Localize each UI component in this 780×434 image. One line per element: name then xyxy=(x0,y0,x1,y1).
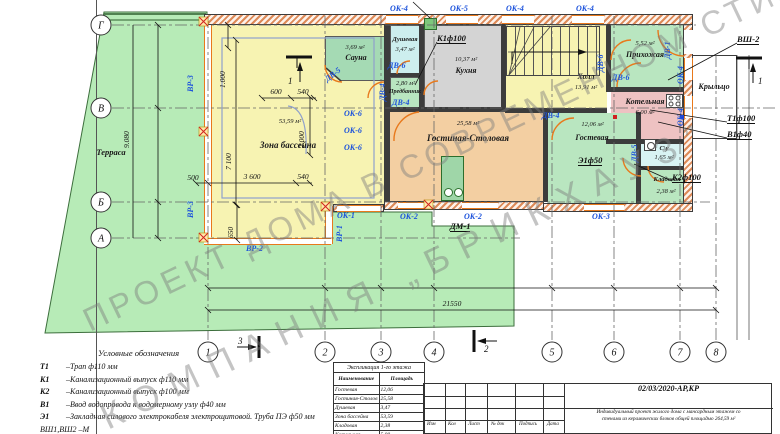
legend-code: Т1 xyxy=(40,361,66,374)
grid-col-label: 7 xyxy=(678,348,684,359)
label-dv4: ДВ-4 xyxy=(378,84,387,101)
name-boiler: Котельная xyxy=(615,97,675,106)
cell-area: 5,00 xyxy=(379,431,425,434)
cell-area: 3,47 xyxy=(379,404,425,413)
grid-row-label: А xyxy=(97,234,105,245)
cell-name: Гостиная-Столов xyxy=(334,395,380,404)
grid-col-label: 6 xyxy=(612,348,617,359)
label-dv1: ДВ-1 xyxy=(663,42,672,59)
label-ok4: ОК-4 xyxy=(576,4,594,13)
stamp-col: № док xyxy=(491,422,504,427)
label-vsh2: ВШ-2 xyxy=(737,34,759,45)
label-v1: В1ф40 xyxy=(727,129,752,140)
area-kitchen: 10,37 м² xyxy=(446,56,486,63)
label-dv4: ДВ-4 xyxy=(392,98,409,107)
grid-col-label: 5 xyxy=(550,348,555,359)
window-ok3 xyxy=(584,204,624,211)
area-anteroom: 2,80 м² xyxy=(391,80,420,87)
label-vr2: ВР-2 xyxy=(246,244,263,253)
table-row: Кладовая2,38 xyxy=(334,422,425,431)
wall xyxy=(384,107,506,112)
legend-text: –Закладная силового электрокабеля электр… xyxy=(66,411,332,424)
section-label: 2 xyxy=(484,344,489,354)
glazing-vr2 xyxy=(204,238,331,245)
legend-text: –Трап ф110 мм xyxy=(66,361,332,374)
wall xyxy=(606,24,611,92)
stamp-col: Подпись xyxy=(519,422,537,427)
project-description: Индивидуальный проект жилого дома с манс… xyxy=(564,409,773,422)
cell-name: Душевая xyxy=(334,404,380,413)
col-area: Площадь xyxy=(379,373,425,386)
grid-col-label: 4 xyxy=(432,348,437,359)
name-hall: Холл xyxy=(566,72,606,81)
label-e1: Э1ф50 xyxy=(578,155,602,166)
grid-row-label: Г xyxy=(97,21,104,32)
grid-row-label: В xyxy=(98,104,104,115)
name-porch: Крыльцо xyxy=(694,82,734,91)
cell-name: Гостевая xyxy=(334,386,380,395)
legend-text: –Канализационный выпуск ф110 мм xyxy=(66,374,332,387)
legend: Условные обозначения Т1–Трап ф110 мм К1–… xyxy=(40,348,332,434)
name-terrace: Терраса xyxy=(86,147,136,157)
label-ok2: ОК-2 xyxy=(464,212,482,221)
label-ok1: ОК-1 xyxy=(337,211,355,220)
room-porch xyxy=(691,55,737,139)
stamp-col: Лист xyxy=(468,422,480,427)
name-pool: Зона бассейна xyxy=(228,140,348,150)
document-code: 02/03/2020-АР,КР xyxy=(564,384,773,408)
label-ok4: ОК-4 xyxy=(506,4,524,13)
name-living: Гостиная-Столовая xyxy=(412,133,524,143)
window-ok5 xyxy=(446,15,478,24)
window-ok2 xyxy=(462,202,498,209)
legend-text: –Канализационный выпуск ф100 мм xyxy=(66,386,332,399)
label-vr1: ВР-1 xyxy=(335,225,344,242)
label-ok5: ОК-5 xyxy=(450,4,468,13)
label-dv4: ДВ-4 xyxy=(542,111,559,120)
cell-name: Зона бассейна xyxy=(334,413,380,422)
glazing-vr3 xyxy=(204,25,212,237)
legend-code: К1 xyxy=(40,374,66,387)
window-ok4 xyxy=(572,15,604,24)
area-boiler: 6,00 м² xyxy=(622,109,668,116)
section-label: 1 xyxy=(758,76,763,86)
name-shower: Душевая xyxy=(389,36,421,43)
table-row: Душевая3,47 xyxy=(334,404,425,413)
label-dv5: ДВ-5 xyxy=(630,145,639,162)
area-living: 25,58 м² xyxy=(438,120,498,127)
area-storage: 2,38 м² xyxy=(652,188,680,195)
name-guest: Гостевая xyxy=(562,133,622,142)
window-ok4 xyxy=(386,15,418,24)
dim-500: 500 xyxy=(187,173,199,182)
room-pool-notch xyxy=(206,206,326,238)
name-sauna: Сауна xyxy=(334,53,378,62)
label-ok4-side: ОК-4 xyxy=(676,108,685,126)
window-ok4-side xyxy=(684,58,693,80)
wall xyxy=(543,112,548,202)
section-label: 3 xyxy=(237,336,243,346)
label-ok6: ОК-6 xyxy=(344,109,362,118)
kitchen-island xyxy=(441,156,464,201)
name-wc: С\у xyxy=(652,145,676,152)
grid-col-label: 8 xyxy=(714,348,719,359)
label-ok4-side: ОК-4 xyxy=(676,66,685,84)
label-ok2: ОК-2 xyxy=(400,212,418,221)
stamp-col: Изм xyxy=(427,422,436,427)
label-dv6: ДВ-6 xyxy=(596,55,605,72)
stamp-col: Кол xyxy=(448,422,456,427)
title-block: Изм Кол Лист № док Подпись Дата 02/03/20… xyxy=(423,383,772,434)
window-ok2 xyxy=(398,202,434,209)
label-ok4: ОК-4 xyxy=(390,4,408,13)
staircase xyxy=(506,26,600,76)
cell-area: 25,58 xyxy=(379,395,425,404)
cell-name: Кладовая xyxy=(334,422,380,431)
legend-code: Э1 xyxy=(40,411,66,424)
cell-area: 2,38 xyxy=(379,422,425,431)
legend-title: Условные обозначения xyxy=(98,348,332,358)
area-pool: 53,59 м² xyxy=(235,118,345,125)
area-shower: 3,47 м² xyxy=(390,46,420,53)
legend-text: –Ввод водопровода к водомерному узлу ф40… xyxy=(66,399,332,412)
area-sauna: 3,69 м² xyxy=(332,44,378,51)
area-hall: 13,91 м² xyxy=(562,84,610,91)
legend-clipped: ВШ1,ВШ2 –М xyxy=(40,424,332,434)
dim-total: 21550 xyxy=(443,299,462,308)
table-row: Зона бассейна53,59 xyxy=(334,413,425,422)
name-anteroom: Предбанник xyxy=(386,89,424,95)
label-dv6: ДВ-6 xyxy=(388,61,405,70)
label-ok6: ОК-6 xyxy=(344,126,362,135)
dim-9080: 9.080 xyxy=(122,131,131,148)
table-row: Гостиная-Столов25,58 xyxy=(334,395,425,404)
area-wc: 1,65 м² xyxy=(650,154,678,161)
label-k1: К1ф100 xyxy=(437,33,466,44)
grid-col-label: 3 xyxy=(378,348,384,359)
wall xyxy=(501,24,506,108)
cell-area: 53,59 xyxy=(379,413,425,422)
vent-shaft-box xyxy=(424,18,437,30)
label-ok3: ОК-3 xyxy=(592,212,610,221)
legend-code: К2 xyxy=(40,386,66,399)
label-ok6: ОК-6 xyxy=(344,143,362,152)
table-row: Гостевая12,06 xyxy=(334,386,425,395)
label-vr3: ВР-3 xyxy=(186,75,195,92)
window-ok4 xyxy=(502,15,534,24)
cell-area: 12,06 xyxy=(379,386,425,395)
wall xyxy=(606,87,688,92)
col-name: Наименование xyxy=(334,373,380,386)
label-vr3: ВР-3 xyxy=(186,201,195,218)
grid-row-label: Б xyxy=(97,198,104,209)
label-dv6: ДВ-6 xyxy=(612,73,629,82)
name-kitchen: Кухня xyxy=(446,66,486,75)
legend-code: В1 xyxy=(40,399,66,412)
area-guest: 12,06 м² xyxy=(565,121,620,128)
label-t1: Т1ф100 xyxy=(727,113,755,124)
wall xyxy=(390,73,420,77)
explication-table: Экспликация 1-го этажа Наименование Площ… xyxy=(333,362,425,434)
wall xyxy=(641,166,684,170)
explication-title: Экспликация 1-го этажа xyxy=(334,363,425,373)
project-description-line2: стенами из керамических блоков общей пло… xyxy=(564,416,773,423)
name-storage: Кладовая xyxy=(648,176,686,183)
stamp-col: Дата xyxy=(547,422,559,427)
floor-plan-sheet: 1 1 3 2 9.080 1.000 7 100 2.000 650 600 … xyxy=(0,0,780,434)
window-ok4-side xyxy=(684,96,693,118)
table-row: Котельная5,00 xyxy=(334,431,425,434)
label-dm1: ДМ-1 xyxy=(450,221,470,232)
cell-name: Котельная xyxy=(334,431,380,434)
door-gap-dv1 xyxy=(684,30,693,54)
